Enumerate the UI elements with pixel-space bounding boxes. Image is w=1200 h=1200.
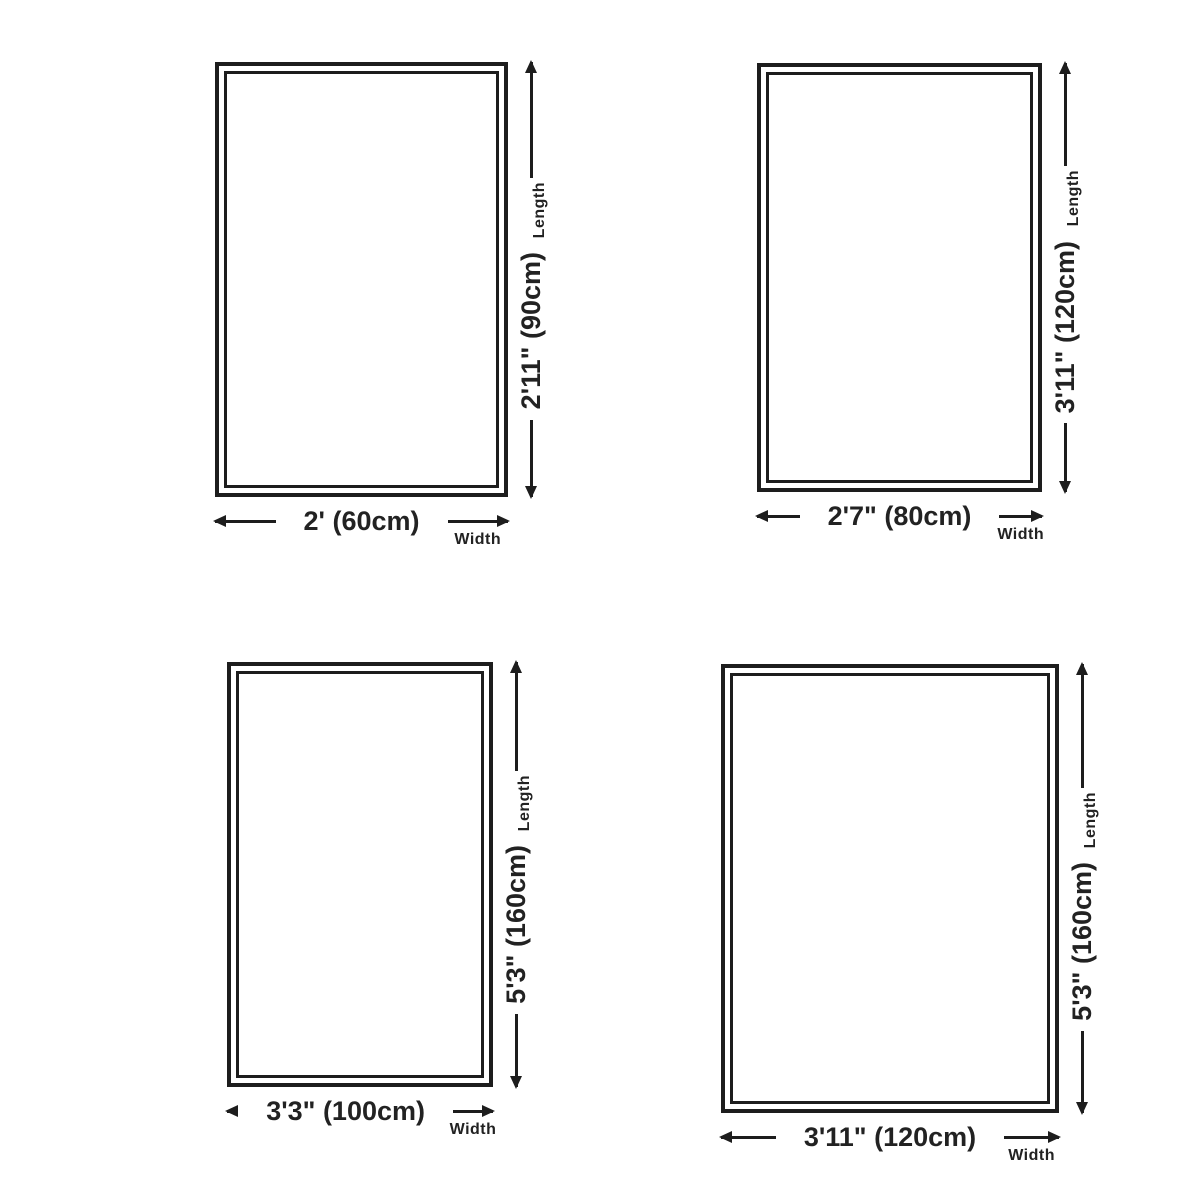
width-dimension: 3'3" (100cm) Width xyxy=(227,1095,493,1127)
arrow-left-icon xyxy=(757,515,800,518)
width-arrow-group: Width xyxy=(999,515,1042,518)
length-value: 5'3" (160cm) xyxy=(501,835,532,1014)
width-dimension: 2'7" (80cm) Width xyxy=(757,500,1042,532)
length-dimension: Length 2'11" (90cm) xyxy=(514,62,548,497)
rug-inner-outline xyxy=(766,72,1033,483)
arrow-left-icon xyxy=(721,1136,776,1139)
arrow-down-icon xyxy=(1081,1031,1084,1113)
width-dimension: 3'11" (120cm) Width xyxy=(721,1121,1059,1153)
arrow-up-icon xyxy=(1064,63,1067,166)
arrow-down-icon xyxy=(515,1014,518,1087)
width-value: 3'3" (100cm) xyxy=(238,1096,453,1127)
rug-inner-outline xyxy=(730,673,1050,1104)
length-dimension: Length 3'11" (120cm) xyxy=(1048,63,1082,492)
width-value: 3'11" (120cm) xyxy=(776,1122,1004,1153)
length-label: Length xyxy=(1065,166,1083,230)
length-value: 5'3" (160cm) xyxy=(1067,852,1098,1031)
width-arrow-group: Width xyxy=(453,1110,493,1113)
width-dimension: 2' (60cm) Width xyxy=(215,505,508,537)
width-value: 2'7" (80cm) xyxy=(800,501,1000,532)
arrow-down-icon xyxy=(530,420,533,497)
length-label: Length xyxy=(516,771,534,835)
width-value: 2' (60cm) xyxy=(276,506,448,537)
arrow-left-icon xyxy=(227,1110,238,1113)
arrow-right-icon xyxy=(1004,1136,1059,1139)
width-label: Width xyxy=(454,531,501,549)
width-label: Width xyxy=(450,1121,497,1139)
width-label: Width xyxy=(997,526,1044,544)
width-label: Width xyxy=(1008,1147,1055,1165)
width-arrow-group: Width xyxy=(448,520,509,523)
length-value: 2'11" (90cm) xyxy=(516,242,547,419)
rug-outline xyxy=(215,62,508,497)
length-dimension: Length 5'3" (160cm) xyxy=(1065,664,1099,1113)
arrow-right-icon xyxy=(453,1110,493,1113)
length-value: 3'11" (120cm) xyxy=(1050,231,1081,423)
width-arrow-group: Width xyxy=(1004,1136,1059,1139)
length-label: Length xyxy=(531,178,549,242)
rug-outline xyxy=(757,63,1042,492)
arrow-left-icon xyxy=(215,520,276,523)
arrow-right-icon xyxy=(448,520,509,523)
rug-outline xyxy=(227,662,493,1087)
rug-inner-outline xyxy=(224,71,499,488)
rug-inner-outline xyxy=(236,671,484,1078)
arrow-up-icon xyxy=(1081,664,1084,788)
arrow-down-icon xyxy=(1064,423,1067,492)
length-label: Length xyxy=(1082,788,1100,852)
length-dimension: Length 5'3" (160cm) xyxy=(499,662,533,1087)
arrow-up-icon xyxy=(515,662,518,771)
rug-outline xyxy=(721,664,1059,1113)
arrow-up-icon xyxy=(530,62,533,178)
arrow-right-icon xyxy=(999,515,1042,518)
